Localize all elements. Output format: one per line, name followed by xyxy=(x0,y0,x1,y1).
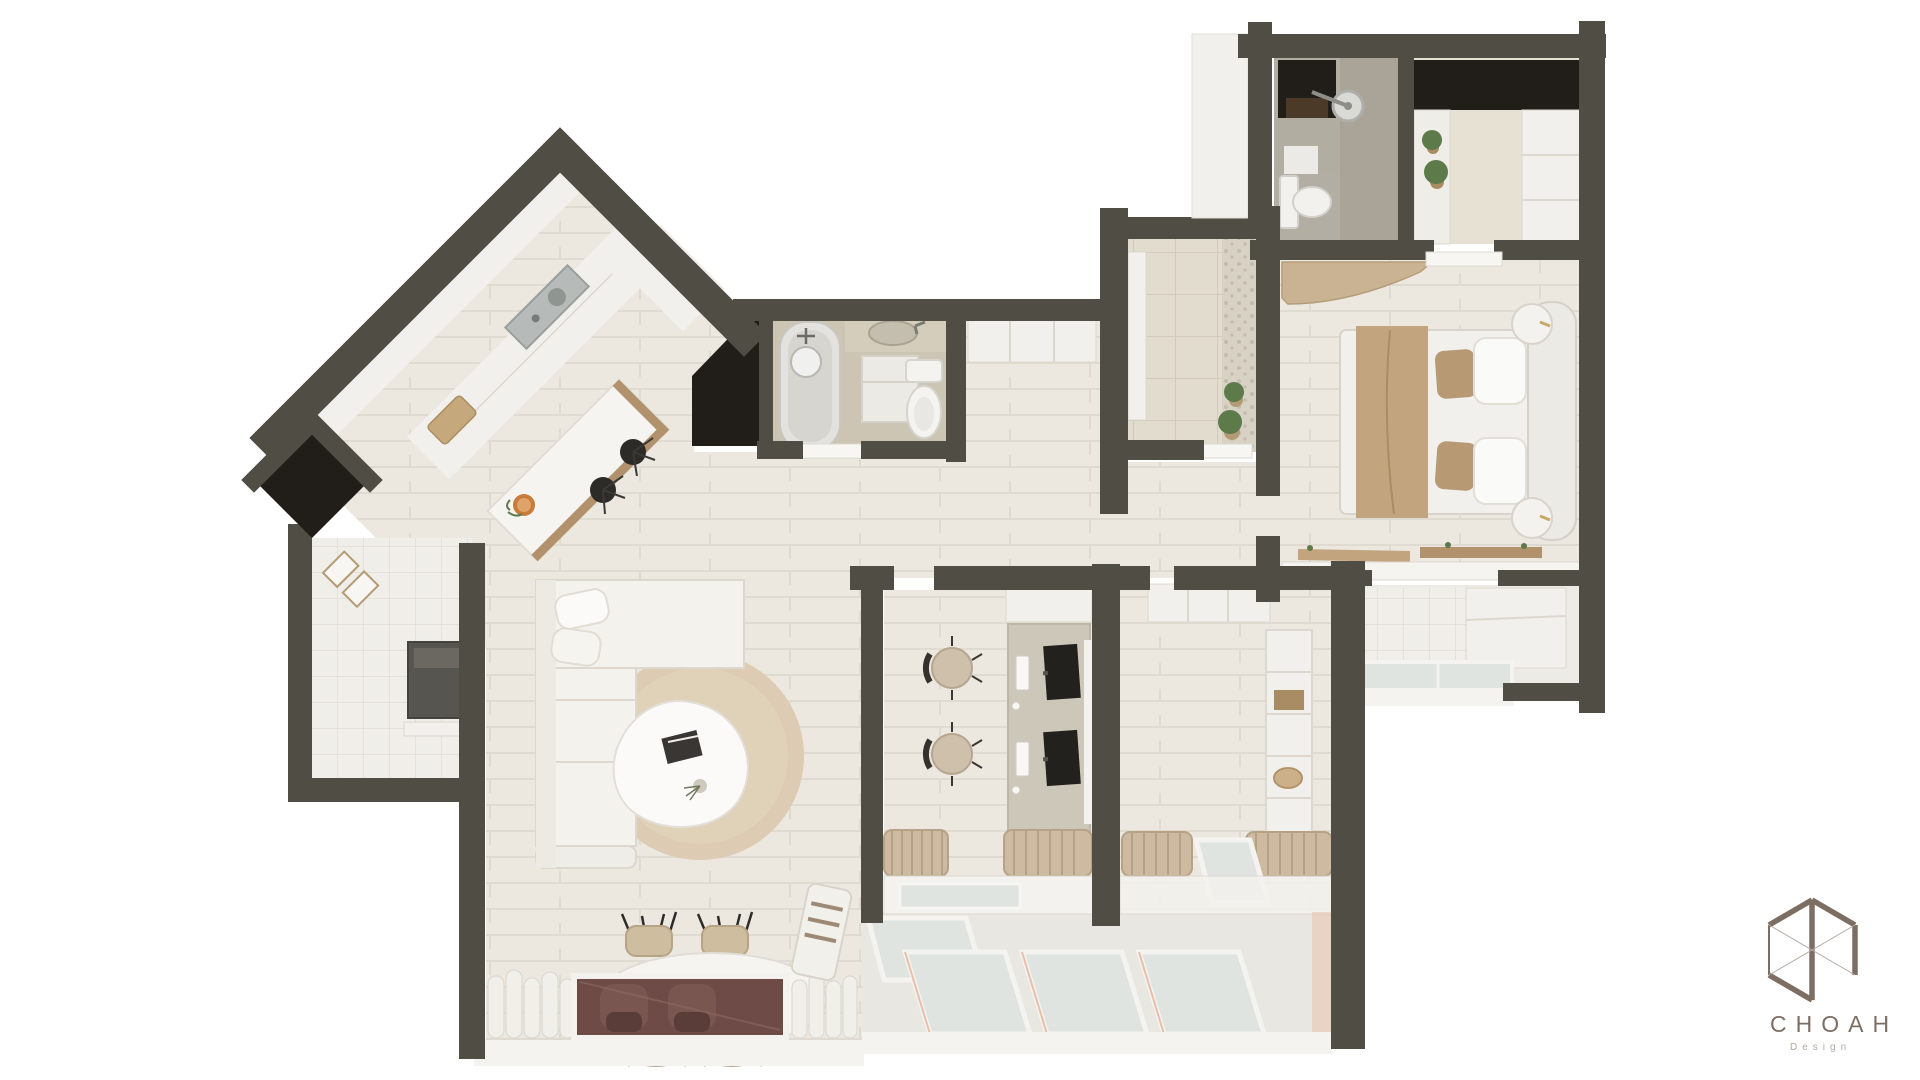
floor-plan-render: CHOAH Design xyxy=(0,0,1920,1080)
basket xyxy=(1274,768,1302,788)
corridor-window xyxy=(1362,662,1512,690)
study-cabinet xyxy=(1006,586,1092,622)
toilet xyxy=(906,360,942,438)
duvet xyxy=(1474,338,1526,404)
rear-pink-glow xyxy=(1312,912,1332,1032)
coffee-table xyxy=(614,701,748,827)
ensuite-shade xyxy=(1340,58,1406,244)
bedroom-door xyxy=(1426,252,1502,266)
monitor xyxy=(1041,644,1081,700)
shoe-cabinet xyxy=(1128,252,1146,420)
bedroom2-window-band xyxy=(1120,876,1332,914)
balcony-curtains-right xyxy=(792,974,857,1038)
washer-top xyxy=(414,648,462,668)
balcony-glass xyxy=(574,976,786,1038)
cube-logo-icon xyxy=(1769,900,1855,1000)
bathroom-sink xyxy=(869,321,917,345)
rear-balcony-sill xyxy=(862,1032,1332,1054)
bed xyxy=(1340,326,1530,518)
drawer xyxy=(1274,690,1304,710)
bookshelf xyxy=(1266,630,1312,835)
bed-pillow xyxy=(1434,349,1477,400)
closet-void xyxy=(1414,60,1582,110)
bathroom-door xyxy=(794,444,870,458)
floor-plan-page: CHOAH Design xyxy=(0,0,1920,1080)
sofa-pillow xyxy=(550,627,602,667)
closet-cabinet xyxy=(1522,110,1582,244)
bathtub xyxy=(780,322,840,450)
logo: CHOAH Design xyxy=(1769,900,1898,1053)
exterior-white-volume xyxy=(1192,34,1248,218)
brand-name: CHOAH xyxy=(1770,1011,1898,1037)
monitor xyxy=(1041,730,1081,786)
bed-pillow xyxy=(1434,441,1477,492)
brand-subtitle: Design xyxy=(1790,1042,1851,1053)
duvet xyxy=(1474,438,1526,504)
corridor-cabinet xyxy=(1466,588,1566,668)
utility-shelf xyxy=(404,722,468,736)
corridor-sill xyxy=(1356,690,1514,706)
